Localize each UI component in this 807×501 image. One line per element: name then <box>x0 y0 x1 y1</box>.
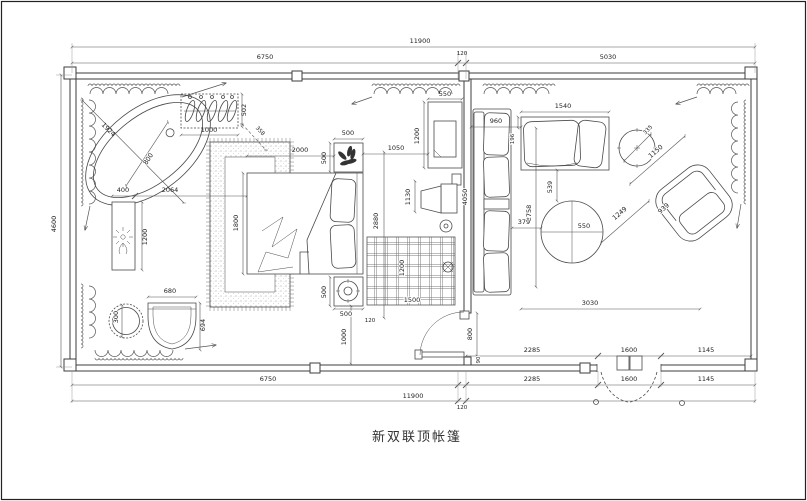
window-mullion <box>580 363 590 373</box>
dim-console-length: 1200 <box>141 229 149 246</box>
floor-plan-canvas: 11900 6750 120 5030 4600 1924 800 1000 5… <box>0 0 807 501</box>
dim-bed-to-wall: 1000 <box>340 329 348 346</box>
dim-sofa-depth: 960 <box>490 117 502 125</box>
dim-top-total: 11900 <box>410 37 431 45</box>
dim-door-gap: 90 <box>476 356 482 363</box>
dim-nightstand-bottom-width: 500 <box>340 310 352 318</box>
dim-left-height: 4600 <box>50 216 58 233</box>
pillow <box>330 224 356 268</box>
walls <box>64 67 757 373</box>
window-mullion <box>310 363 320 373</box>
bed <box>247 173 363 274</box>
dim-console-offset: 400 <box>117 186 129 194</box>
window-mullion <box>292 71 302 81</box>
dim-sofa-length: 4050 <box>461 189 469 206</box>
dim-nightstand-top-width: 500 <box>342 129 354 137</box>
dim-bed-side-gap: 120 <box>365 318 376 324</box>
dim-grid-rug-height: 1200 <box>398 260 406 277</box>
dim-stool: 300 <box>112 311 120 323</box>
dim-bottom-mid-b: 1600 <box>621 375 638 383</box>
dim-cabinet-height: 1200 <box>413 128 421 145</box>
dim-bottom-mid-left: 6750 <box>260 375 277 383</box>
dim-chaise-to-table: 539 <box>546 181 554 193</box>
dim-console-to-bed: 2064 <box>162 186 179 194</box>
pillow <box>330 178 356 222</box>
dim-bottom-mid-c: 1145 <box>698 375 715 383</box>
dim-nightstand-top-depth: 500 <box>320 152 328 164</box>
dim-sofa-to-table: 379 <box>518 218 530 226</box>
dim-top-wall: 120 <box>457 51 468 57</box>
dim-top-right: 5030 <box>600 53 617 61</box>
dim-bed-length: 1800 <box>232 215 240 232</box>
nightstand-top <box>334 143 363 172</box>
dim-bottom-wall: 120 <box>457 405 468 411</box>
dim-bed-to-cabinet: 1050 <box>388 144 405 152</box>
dim-bottom-inner-right: 1145 <box>698 346 715 354</box>
dim-bottom-inner-door: 1600 <box>621 346 638 354</box>
round-table <box>541 201 603 263</box>
dim-chair-depth: 694 <box>199 319 207 331</box>
dim-rack-width: 1000 <box>201 126 218 134</box>
dim-nightstand-bottom-depth: 500 <box>320 286 328 298</box>
dim-table-diameter: 550 <box>578 222 590 230</box>
console-table <box>112 202 135 270</box>
dim-door-width: 800 <box>466 328 474 340</box>
window-mullion <box>459 71 469 81</box>
dim-bottom-total: 11900 <box>403 392 424 400</box>
cabinet <box>428 102 462 168</box>
drawing-title: 新双联顶帐篷 <box>372 429 462 445</box>
dim-top-left: 6750 <box>257 53 274 61</box>
dim-chaise-width: 1540 <box>555 102 572 110</box>
dim-tv-offset: 1130 <box>404 189 412 206</box>
grid-rug <box>367 237 455 305</box>
dim-bed-width: 2000 <box>292 146 309 154</box>
dim-living-width: 3030 <box>582 299 599 307</box>
dim-rack-depth: 502 <box>240 104 248 116</box>
dim-bottom-mid-a: 2285 <box>524 375 541 383</box>
dim-sofa-gap: 196 <box>510 133 516 144</box>
nightstand-bottom <box>334 277 363 306</box>
dim-cabinet-width: 550 <box>439 90 451 98</box>
dim-bed-zone-height: 2880 <box>372 213 380 230</box>
dim-bottom-inner-left: 2285 <box>524 346 541 354</box>
dim-grid-rug-width: 1500 <box>404 296 421 304</box>
floor-plan-page: 11900 6750 120 5030 4600 1924 800 1000 5… <box>0 0 807 501</box>
dim-chair-width: 680 <box>164 287 176 295</box>
